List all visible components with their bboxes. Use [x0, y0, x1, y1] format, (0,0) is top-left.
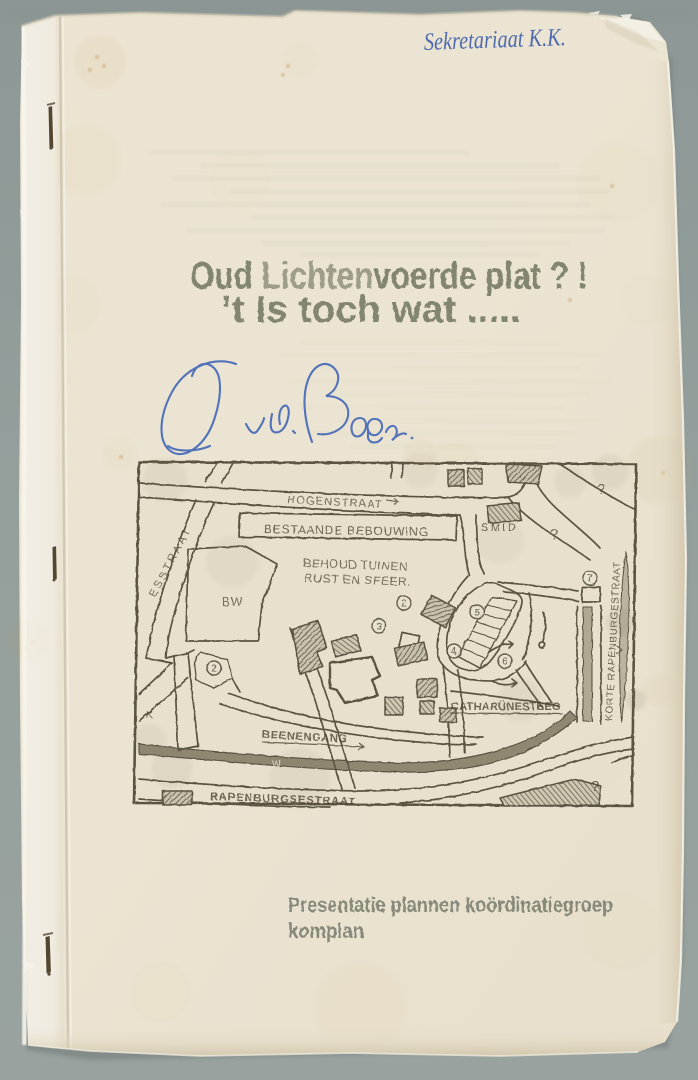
svg-text:2: 2 — [211, 664, 217, 675]
svg-text:BESTAANDE BEBOUWING: BESTAANDE BEBOUWING — [264, 522, 430, 539]
svg-text:CATHARÜNESTEEG: CATHARÜNESTEEG — [451, 700, 561, 713]
svg-text:7: 7 — [587, 574, 593, 585]
svg-text:?: ? — [550, 526, 558, 543]
svg-text:’t Is toch wat .....: ’t Is toch wat ..... — [221, 287, 521, 330]
svg-text:?: ? — [591, 778, 599, 795]
svg-text:K: K — [146, 710, 153, 721]
svg-text:BW: BW — [222, 595, 243, 609]
svg-text:SMID: SMID — [481, 522, 519, 534]
svg-text:5: 5 — [474, 608, 480, 619]
svg-text:komplan: komplan — [288, 920, 364, 943]
svg-text:4: 4 — [451, 647, 457, 658]
svg-text:?: ? — [597, 481, 605, 498]
svg-text:3: 3 — [376, 622, 382, 633]
svg-text:Sekretariaat K.K.: Sekretariaat K.K. — [423, 24, 566, 56]
svg-text:2: 2 — [401, 599, 407, 610]
svg-text:W: W — [272, 759, 281, 769]
svg-text:6: 6 — [502, 657, 508, 668]
svg-text:Presentatie plannen koördinati: Presentatie plannen koördinatiegroep — [288, 894, 613, 917]
